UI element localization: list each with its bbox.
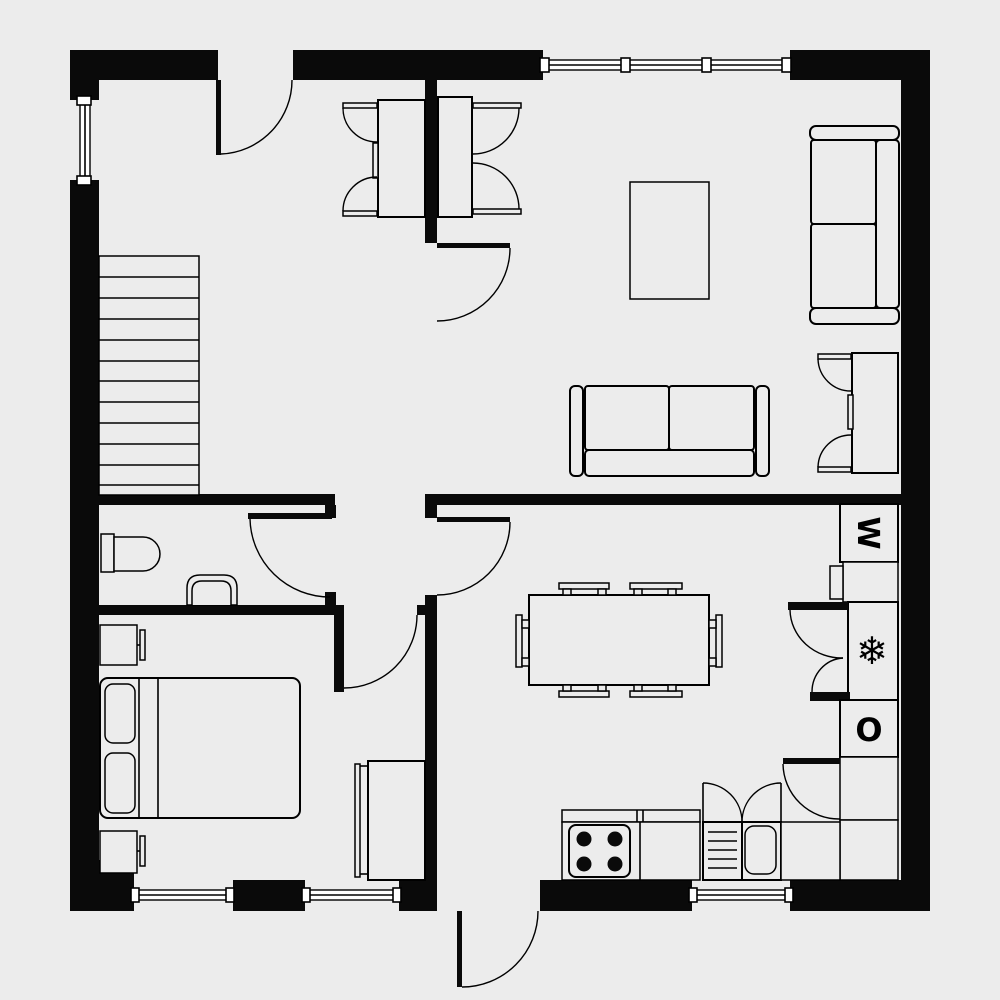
staircase bbox=[99, 256, 199, 495]
counter-plain-segment bbox=[781, 822, 840, 880]
double-bed bbox=[100, 678, 300, 818]
kitchen-drawers bbox=[703, 822, 742, 880]
sofa-bottom bbox=[570, 386, 769, 476]
washing-machine-label: W bbox=[850, 516, 885, 549]
floor-plan-drawing: W ❄ O bbox=[0, 0, 1000, 1000]
window-bedroom-left bbox=[131, 888, 234, 902]
counter-corner bbox=[840, 820, 898, 880]
counter-segment-1 bbox=[830, 562, 898, 602]
oven: O bbox=[840, 700, 898, 757]
kitchen-sink bbox=[742, 822, 781, 880]
oven-label: O bbox=[855, 711, 882, 749]
window-bedroom-right bbox=[302, 888, 401, 902]
window-kitchen bbox=[689, 888, 793, 902]
dining-set bbox=[516, 583, 722, 697]
coffee-table bbox=[630, 182, 709, 299]
stove bbox=[569, 825, 630, 877]
toilet bbox=[101, 534, 160, 572]
floor-plan-canvas: W ❄ O bbox=[0, 0, 1000, 1000]
washbasin bbox=[187, 575, 237, 605]
sofa-right bbox=[810, 126, 899, 324]
freezer-icon: ❄ bbox=[856, 629, 888, 673]
washing-machine: W bbox=[840, 504, 898, 562]
window-top-wall bbox=[540, 58, 791, 72]
